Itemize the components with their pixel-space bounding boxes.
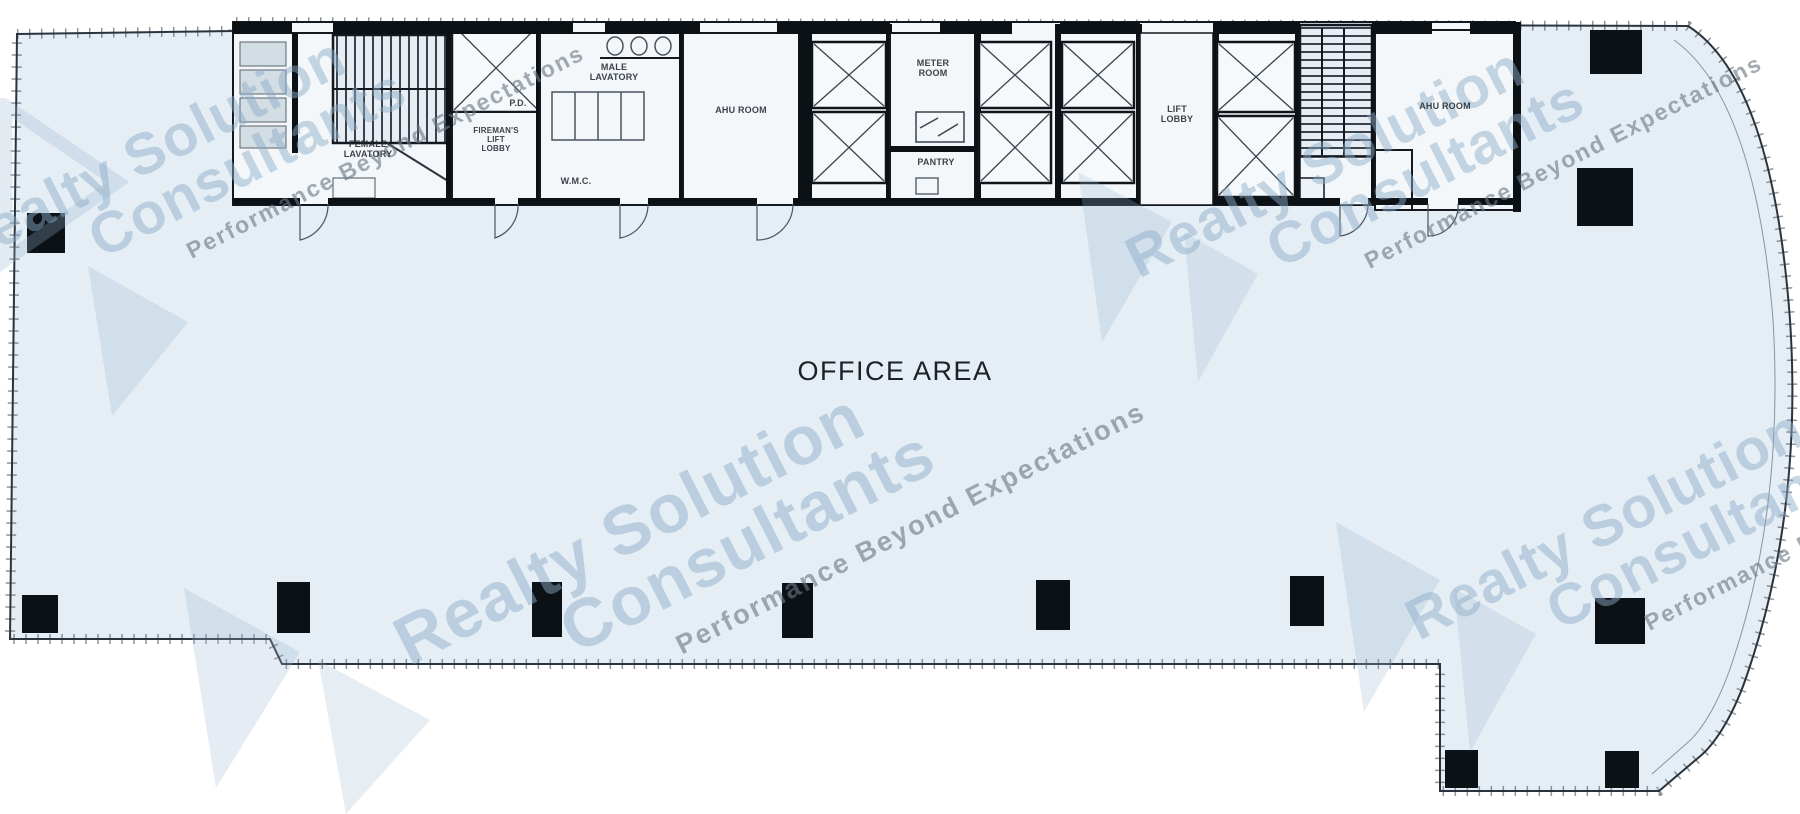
lift-bank-c [1062, 42, 1134, 183]
band-bottom-wall [233, 198, 1515, 205]
female-lavatory-label: FEMALE LAVATORY [326, 139, 410, 160]
pantry-label: PANTRY [905, 157, 967, 167]
meter-room-label: METER ROOM [905, 58, 961, 79]
ahu-room-right-label: AHU ROOM [1400, 101, 1490, 111]
lift-bank-b [979, 42, 1051, 183]
lift-lobby-label: LIFT LOBBY [1148, 104, 1206, 125]
pd-label: P.D. [498, 98, 538, 108]
male-lavatory-label: MALE LAVATORY [578, 62, 650, 83]
stairwell-right [1300, 25, 1372, 205]
floor-plan-drawing [0, 0, 1800, 814]
ahu-room-left-label: AHU ROOM [700, 105, 782, 115]
ahu-room-right [1375, 30, 1515, 210]
wmc-label: W.M.C. [548, 176, 604, 186]
lift-bank-d [1217, 42, 1295, 197]
floor-plan-page: Realty Solution Consultants Performance … [0, 0, 1800, 814]
office-area-label: OFFICE AREA [745, 356, 1045, 387]
ahu-room-left [683, 33, 800, 205]
lift-bank-a [812, 42, 886, 183]
firemans-lift-lobby-label: FIREMAN'S LIFT LOBBY [456, 126, 536, 154]
